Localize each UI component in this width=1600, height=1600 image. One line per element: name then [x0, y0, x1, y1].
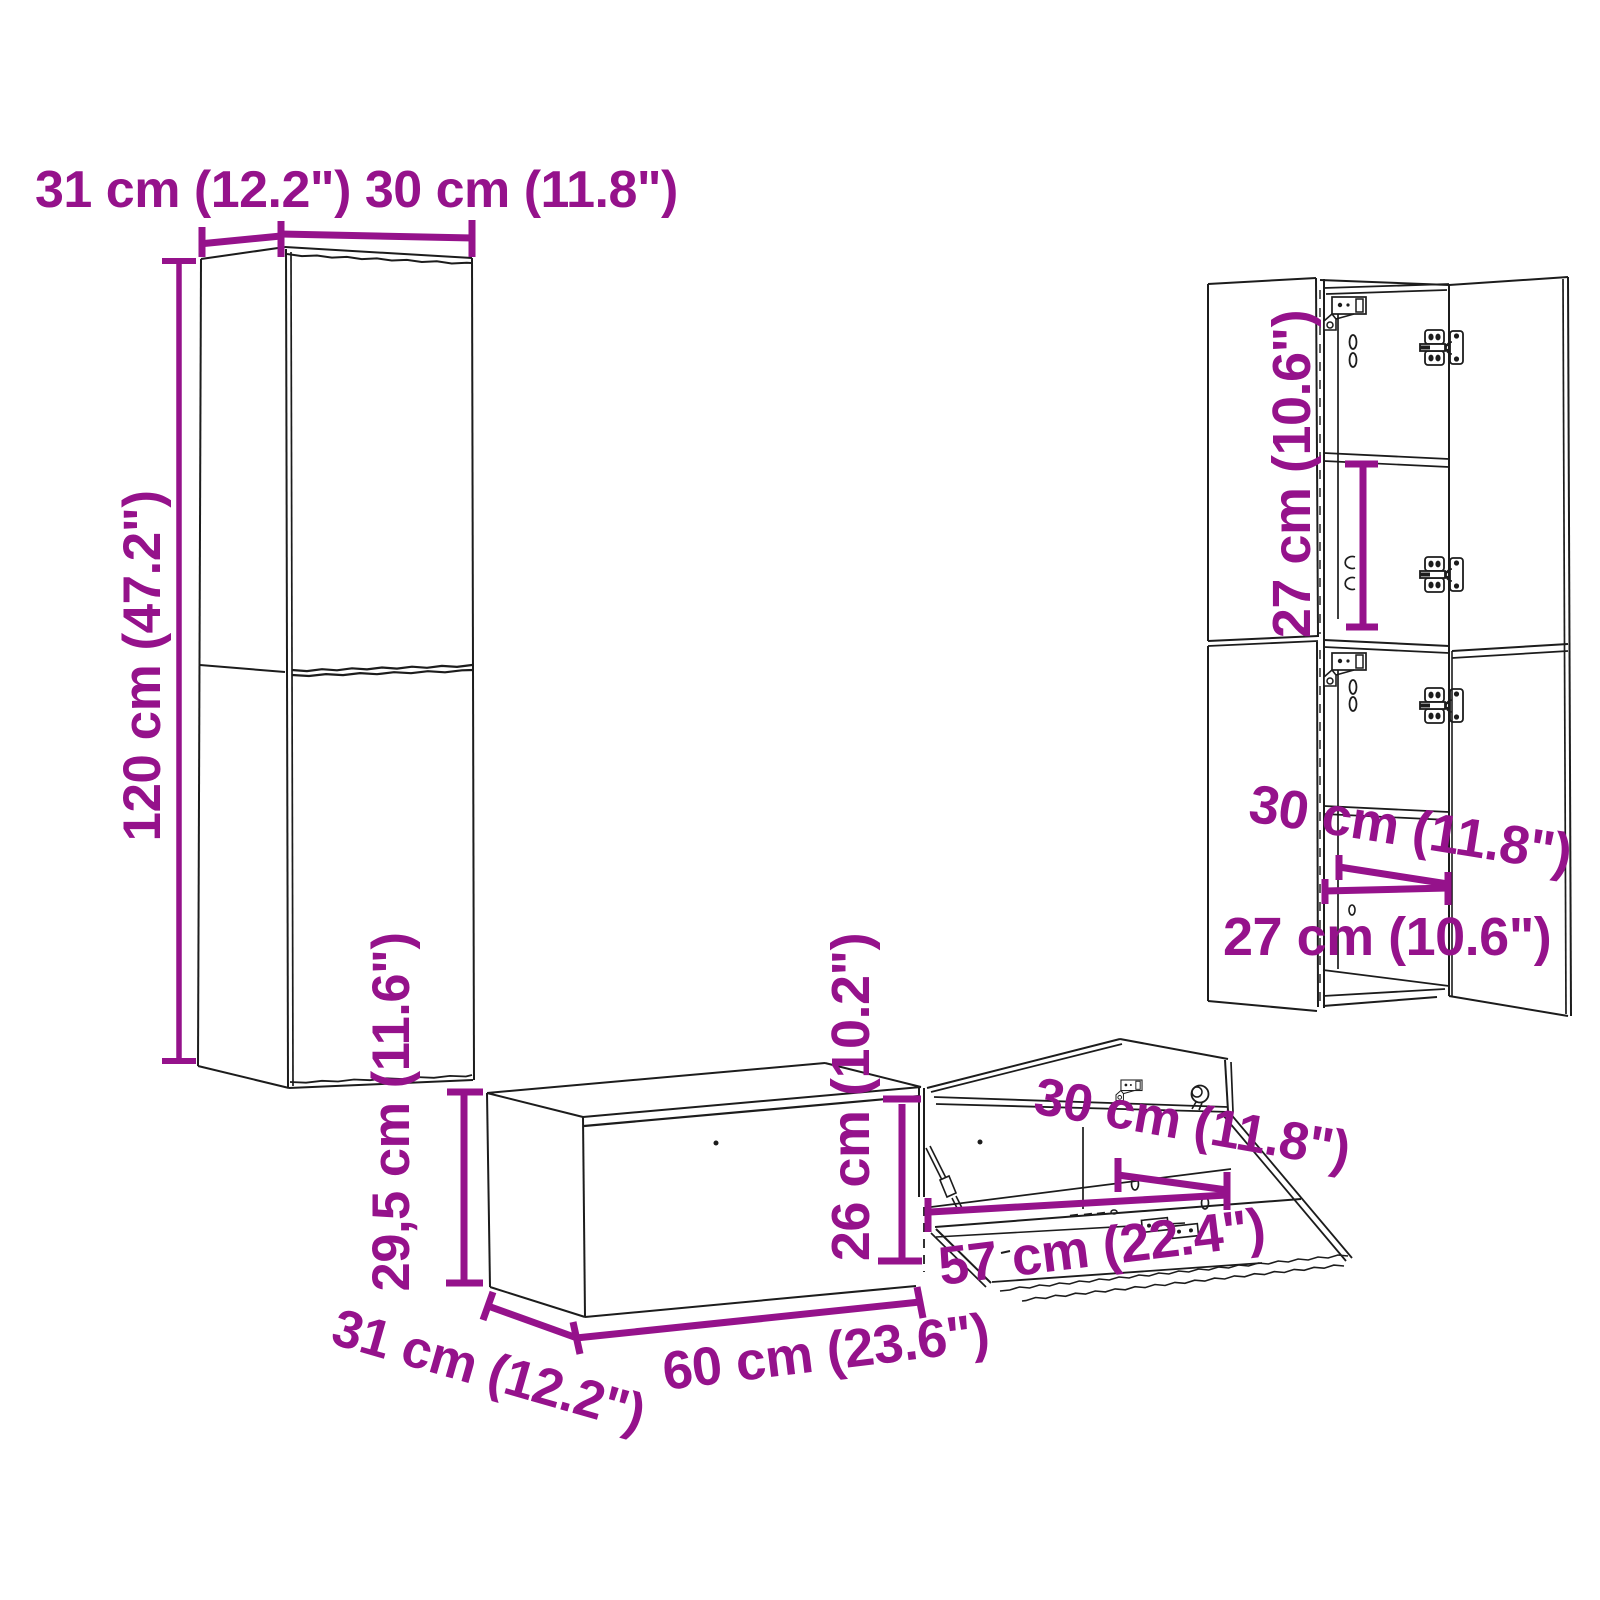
svg-text:26 cm (10.2"): 26 cm (10.2") [821, 933, 881, 1261]
svg-text:120 cm (47.2"): 120 cm (47.2") [113, 490, 172, 841]
svg-text:31 cm (12.2") 30 cm (11.8"): 31 cm (12.2") 30 cm (11.8") [35, 161, 678, 219]
svg-text:27 cm (10.6"): 27 cm (10.6") [1223, 907, 1551, 967]
svg-text:29,5 cm (11.6"): 29,5 cm (11.6") [362, 933, 421, 1292]
svg-text:27 cm (10.6"): 27 cm (10.6") [1262, 310, 1322, 638]
